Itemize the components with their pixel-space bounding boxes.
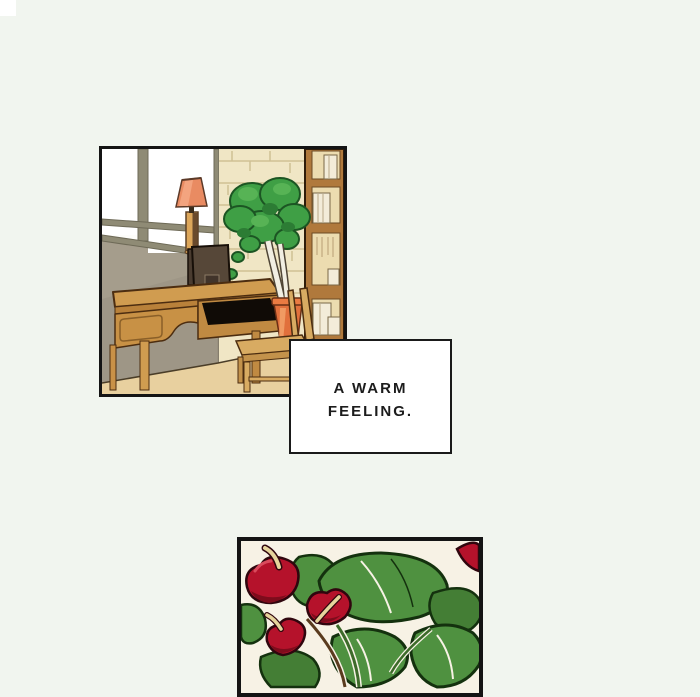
anthurium-illustration: [241, 541, 479, 693]
caption-line-2: FEELING.: [291, 400, 450, 423]
comic-page: { "page": { "background_color": "#f1f5ef…: [0, 0, 700, 681]
caption-box: A WARM FEELING.: [289, 339, 452, 454]
page-corner-square: [0, 0, 16, 16]
caption-line-1: A WARM: [291, 377, 450, 400]
speaker: [188, 245, 230, 287]
anthurium-panel: [237, 537, 483, 697]
